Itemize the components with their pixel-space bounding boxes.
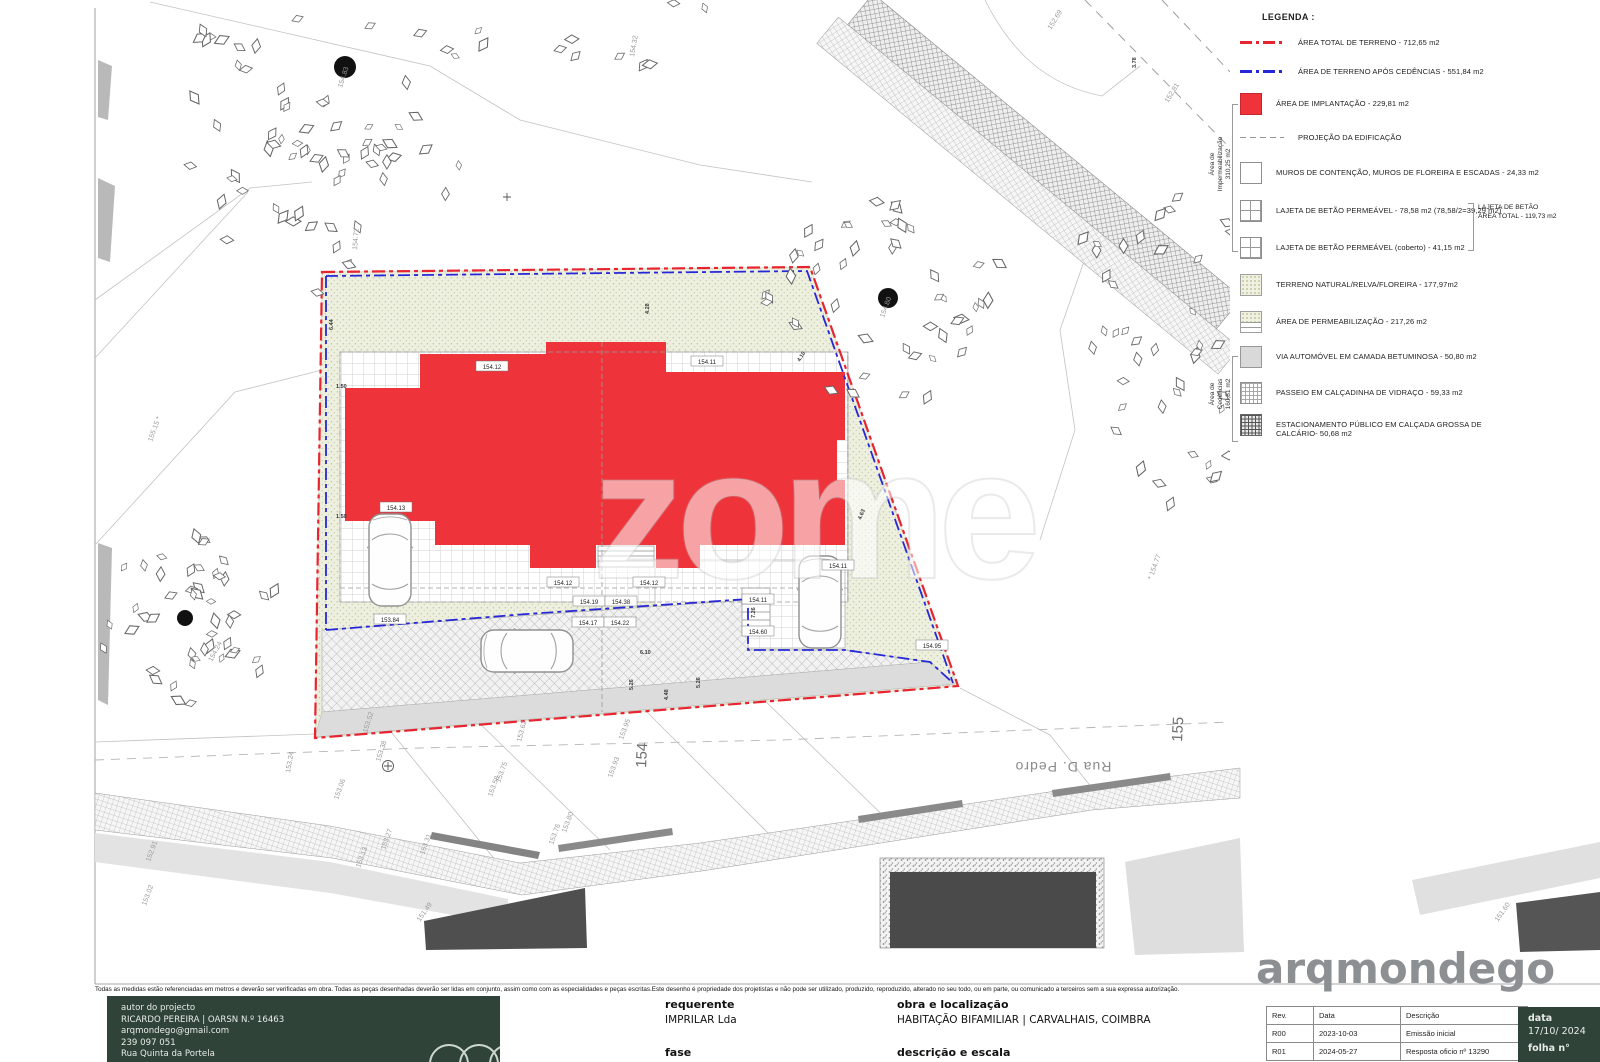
tree-leaf bbox=[147, 672, 164, 688]
revision-header: Data bbox=[1314, 1007, 1401, 1025]
svg-text:154.11: 154.11 bbox=[829, 564, 848, 570]
svg-text:154.12: 154.12 bbox=[483, 365, 502, 371]
author-block: autor do projecto RICARDO PEREIRA | OARS… bbox=[107, 996, 500, 1062]
tree-leaf bbox=[358, 145, 372, 161]
lajeta-total-note: LAJETA DE BETÃO ÁREA TOTAL - 119,73 m2 bbox=[1478, 203, 1557, 221]
tree-leaf bbox=[330, 239, 343, 254]
tree-leaf bbox=[379, 172, 388, 186]
spot-elevation-label: 153.02 bbox=[141, 884, 155, 907]
tree-leaf bbox=[450, 52, 460, 61]
requerente-field: requerente IMPRILAR Lda bbox=[665, 998, 737, 1026]
dimension-label: 5.26 bbox=[696, 677, 702, 688]
legend-swatch-gray-fill bbox=[1240, 346, 1262, 368]
legend-item-label: PASSEIO EM CALÇADINHA DE VIDRAÇO - 59,33… bbox=[1276, 382, 1463, 397]
svg-text:154.17: 154.17 bbox=[579, 621, 598, 627]
tree-leaf bbox=[1100, 325, 1109, 337]
existing-wall-strips bbox=[98, 60, 115, 705]
tree-leaf bbox=[1116, 401, 1128, 412]
legend-item: PASSEIO EM CALÇADINHA DE VIDRAÇO - 59,33… bbox=[1240, 382, 1463, 404]
legend-item-label: ÁREA TOTAL DE TERRENO - 712,65 m2 bbox=[1298, 32, 1440, 47]
tree-leaf bbox=[923, 322, 937, 331]
arqmondego-logo: arqmondego bbox=[1256, 944, 1555, 993]
descricao-heading: descrição e escala bbox=[897, 1046, 1010, 1059]
tree-leaf bbox=[990, 255, 1008, 271]
tree-leaf bbox=[869, 196, 885, 207]
tree-leaf bbox=[858, 371, 871, 381]
boxed-elevation-label: 154.60 bbox=[742, 626, 774, 636]
obra-value: HABITAÇÃO BIFAMILIAR | CARVALHAIS, COIMB… bbox=[897, 1014, 1151, 1026]
legend-item: VIA AUTOMÓVEL EM CAMADA BETUMINOSA - 50,… bbox=[1240, 346, 1477, 368]
spot-elevation-label: 153.58 bbox=[487, 775, 501, 798]
tree-leaf bbox=[1134, 459, 1148, 477]
author-heading: autor do projecto bbox=[121, 1003, 500, 1015]
svg-text:154.11: 154.11 bbox=[698, 360, 717, 366]
tree-leaf bbox=[801, 222, 816, 239]
author-email: arqmondego@gmail.com bbox=[121, 1026, 500, 1038]
boxed-elevation-label: 154.17 bbox=[572, 617, 604, 627]
legend-item-label: PROJEÇÃO DA EDIFICAÇÃO bbox=[1298, 127, 1401, 142]
legend-item-label: ÁREA DE IMPLANTAÇÃO - 229,81 m2 bbox=[1276, 93, 1409, 108]
tree-leaf bbox=[292, 140, 303, 147]
tree-leaf bbox=[206, 630, 217, 637]
spot-elevation-label: 152.81 bbox=[1164, 82, 1181, 104]
spot-elevation-label: 154 bbox=[633, 742, 651, 768]
revision-row: R012024-05-27Resposta oficio nº 13290 bbox=[1267, 1043, 1528, 1061]
svg-text:154.19: 154.19 bbox=[580, 600, 599, 606]
tree-leaf bbox=[955, 345, 970, 360]
spot-elevation-label: 153.38 bbox=[375, 740, 388, 763]
tree-leaf bbox=[848, 240, 861, 257]
svg-text:154.38: 154.38 bbox=[612, 600, 631, 606]
dimension-label: 3.78 bbox=[1132, 57, 1138, 68]
legend-item: ÁREA DE PERMEABILIZAÇÃO - 217,26 m2 bbox=[1240, 311, 1427, 333]
svg-text:153.84: 153.84 bbox=[381, 618, 400, 624]
date-sheet-block: data 17/10/ 2024 folha n° bbox=[1518, 1007, 1600, 1062]
svg-text:154.11: 154.11 bbox=[749, 598, 768, 604]
spot-elevation-label: 153.95 bbox=[618, 718, 632, 741]
spot-elevation-label: * 154.77 bbox=[1147, 554, 1163, 581]
car-garage-left bbox=[365, 514, 415, 606]
spot-elevation-label: 155 bbox=[1169, 716, 1187, 742]
boxed-elevation-label: 154.11 bbox=[691, 356, 723, 366]
tree-leaf bbox=[900, 341, 913, 355]
legend-item-label: MUROS DE CONTENÇÃO, MUROS DE FLOREIRA E … bbox=[1276, 162, 1539, 177]
tree-leaf bbox=[1204, 459, 1213, 470]
tree-leaf bbox=[983, 292, 993, 308]
author-name: RICARDO PEREIRA | OARSN N.º 16463 bbox=[121, 1015, 500, 1027]
boxed-elevation-label: 154.22 bbox=[604, 617, 636, 627]
tree-leaf bbox=[267, 582, 283, 600]
tree-leaf bbox=[251, 38, 262, 54]
tree-leaf bbox=[407, 109, 424, 124]
tree-leaf bbox=[323, 219, 340, 235]
tree-leaf bbox=[1129, 334, 1144, 348]
boxed-elevation-label: 154.12 bbox=[547, 577, 579, 587]
spot-elevation-label: 153.76 bbox=[548, 823, 562, 846]
legend-item-label: ÁREA DE PERMEABILIZAÇÃO - 217,26 m2 bbox=[1276, 311, 1427, 326]
spot-elevation-label: 151.60 bbox=[1494, 902, 1512, 924]
tree-leaf bbox=[1151, 477, 1167, 489]
tree-leaf bbox=[838, 257, 849, 271]
legend-item: LAJETA DE BETÃO PERMEÁVEL - 78,58 m2 (78… bbox=[1240, 200, 1501, 222]
spot-elevation-label: 153.80 bbox=[561, 811, 575, 834]
revision-cell: R01 bbox=[1267, 1043, 1314, 1061]
legend-item: ESTACIONAMENTO PÚBLICO EM CALÇADA GROSSA… bbox=[1240, 414, 1514, 438]
boxed-elevation-label: 154.19 bbox=[573, 596, 605, 606]
tree-leaf bbox=[568, 49, 583, 64]
tree-leaf bbox=[553, 44, 567, 54]
tree-leaf bbox=[1087, 341, 1097, 356]
tree-leaf bbox=[564, 35, 579, 44]
tree-leaf bbox=[394, 122, 404, 131]
spot-elevation-label: 154.72 bbox=[352, 228, 361, 250]
tree-leaf bbox=[473, 26, 483, 36]
legend-item: TERRENO NATURAL/RELVA/FLOREIRA - 177,97m… bbox=[1240, 274, 1458, 296]
tree-leaf bbox=[278, 134, 285, 144]
legend-item: ÁREA DE TERRENO APÓS CEDÊNCIAS - 551,84 … bbox=[1240, 61, 1484, 76]
legend-swatch-dense-grid bbox=[1240, 414, 1262, 436]
spot-elevation-label: 153.93 bbox=[607, 756, 621, 779]
cedencias-label: Área de Cedências 160,81 m2 bbox=[1209, 334, 1233, 454]
legend-item-label: LAJETA DE BETÃO PERMEÁVEL (coberto) - 41… bbox=[1276, 237, 1465, 252]
tree-leaf bbox=[232, 41, 247, 54]
tree-leaf bbox=[183, 161, 197, 171]
tree-leaf bbox=[927, 267, 942, 284]
tree-leaf bbox=[209, 612, 222, 630]
legend-item-label: ESTACIONAMENTO PÚBLICO EM CALÇADA GROSSA… bbox=[1276, 414, 1514, 438]
tree-leaf bbox=[146, 666, 160, 675]
tree-leaf bbox=[251, 654, 263, 665]
tree-leaf bbox=[927, 353, 937, 363]
tree-trunk bbox=[177, 610, 193, 626]
spot-elevation-label: 153.24 bbox=[285, 751, 296, 773]
svg-text:154.12: 154.12 bbox=[640, 581, 659, 587]
tree-leaf bbox=[297, 121, 315, 136]
tree-leaf bbox=[131, 602, 140, 613]
tree-leaf bbox=[140, 559, 149, 572]
revision-table: Rev.DataDescriçãoR002023-10-03Emissão in… bbox=[1266, 1006, 1528, 1061]
tree-leaf bbox=[613, 50, 626, 62]
tree-leaf bbox=[184, 698, 197, 708]
tree-leaf bbox=[1164, 496, 1178, 513]
tree-leaf bbox=[270, 202, 281, 215]
disclaimer-text: Todas as medidas estão referenciadas em … bbox=[95, 986, 1265, 993]
dimension-label: 4.48 bbox=[664, 689, 670, 700]
revision-header: Descrição bbox=[1401, 1007, 1528, 1025]
legend-item-label: VIA AUTOMÓVEL EM CAMADA BETUMINOSA - 50,… bbox=[1276, 346, 1477, 361]
folha-heading: folha n° bbox=[1528, 1042, 1600, 1055]
tree-leaf bbox=[440, 45, 454, 54]
dimension-label: 5.26 bbox=[629, 679, 635, 690]
fase-heading: fase bbox=[665, 1046, 691, 1059]
tree-leaf bbox=[920, 389, 935, 406]
dimension-label: 6.44 bbox=[329, 318, 335, 330]
legend-swatch-grid2 bbox=[1240, 237, 1262, 259]
tree-leaf bbox=[217, 553, 231, 567]
tree-leaf bbox=[169, 692, 188, 708]
tree-leaf bbox=[1109, 424, 1124, 438]
boxed-elevation-label: 154.12 bbox=[476, 361, 508, 371]
tree-leaf bbox=[417, 141, 435, 157]
tree-leaf bbox=[1117, 377, 1129, 385]
tree-leaf bbox=[213, 32, 232, 47]
tree-leaf bbox=[700, 2, 709, 14]
legend-panel: LEGENDA : ÁREA TOTAL DE TERRENO - 712,65… bbox=[1230, 0, 1600, 486]
tree-leaf bbox=[206, 598, 216, 604]
legend-item: MUROS DE CONTENÇÃO, MUROS DE FLOREIRA E … bbox=[1240, 162, 1539, 184]
tree-leaf bbox=[475, 35, 492, 54]
lajeta-total-bracket bbox=[1468, 203, 1474, 251]
boxed-elevation-label: 154.11 bbox=[822, 560, 854, 570]
tree-leaf bbox=[275, 81, 288, 96]
svg-text:154.95: 154.95 bbox=[923, 644, 942, 650]
tree-leaf bbox=[1119, 325, 1131, 337]
car-street bbox=[481, 626, 573, 676]
legend-item: ÁREA DE IMPLANTAÇÃO - 229,81 m2 bbox=[1240, 93, 1409, 115]
tree-leaf bbox=[123, 622, 141, 637]
legend-swatch-speckle bbox=[1240, 274, 1262, 296]
tree-leaf bbox=[880, 218, 893, 229]
tree-leaf bbox=[184, 562, 197, 578]
tree-leaf bbox=[1187, 449, 1200, 459]
boxed-elevation-label: 153.84 bbox=[374, 614, 406, 624]
legend-swatch-gray-dash bbox=[1240, 137, 1284, 138]
boxed-elevation-label: 154.12 bbox=[633, 577, 665, 587]
dimension-label: 6.10 bbox=[640, 650, 651, 656]
tree-leaf bbox=[163, 589, 178, 601]
tree-leaf bbox=[455, 160, 462, 170]
tree-leaf bbox=[156, 567, 166, 582]
data-value: 17/10/ 2024 bbox=[1528, 1026, 1586, 1037]
site-plan-sheet: zome Rua D. Pedro 154.83154.32152.69152.… bbox=[0, 0, 1600, 1062]
tree-leaf bbox=[1150, 342, 1160, 356]
tree-leaf bbox=[898, 389, 911, 401]
revision-cell: Emissão inicial bbox=[1401, 1025, 1528, 1043]
svg-text:154.60: 154.60 bbox=[749, 630, 768, 636]
tree-leaf bbox=[1157, 400, 1167, 414]
tree-leaf bbox=[168, 679, 179, 692]
spot-elevation-label: 154.32 bbox=[629, 35, 640, 57]
tree-leaf bbox=[857, 331, 875, 346]
legend-item: LAJETA DE BETÃO PERMEÁVEL (coberto) - 41… bbox=[1240, 237, 1465, 259]
spot-elevation-label: 155.15 * bbox=[147, 416, 163, 443]
spot-elevation-label: 152.69 bbox=[1047, 9, 1064, 31]
boxed-elevation-label: 154.11 bbox=[742, 594, 774, 604]
legend-swatch-blue-line bbox=[1240, 70, 1284, 73]
legend-title: LEGENDA : bbox=[1262, 12, 1315, 22]
tree-leaf bbox=[972, 260, 985, 270]
legend-swatch-red-line bbox=[1240, 41, 1284, 44]
tree-leaf bbox=[1110, 327, 1121, 339]
legend-swatch-grid2 bbox=[1240, 200, 1262, 222]
fase-field: fase bbox=[665, 1046, 691, 1062]
tree-leaf bbox=[217, 653, 225, 663]
revision-cell: Resposta oficio nº 13290 bbox=[1401, 1043, 1528, 1061]
tree-leaf bbox=[441, 187, 449, 200]
spot-elevation-label: 153.06 bbox=[333, 778, 347, 801]
svg-text:154.22: 154.22 bbox=[611, 621, 630, 627]
legend-item-label: TERRENO NATURAL/RELVA/FLOREIRA - 177,97m… bbox=[1276, 274, 1458, 289]
legend-swatch-fine-grid bbox=[1240, 382, 1262, 404]
boxed-elevation-label: 154.38 bbox=[605, 596, 637, 606]
tree-leaf bbox=[829, 298, 841, 314]
dimension-label: 1.50 bbox=[336, 514, 347, 520]
street-name-label: Rua D. Pedro bbox=[1015, 759, 1112, 775]
obra-heading: obra e localização bbox=[897, 998, 1151, 1011]
tree-leaf bbox=[291, 13, 304, 24]
tree-leaf bbox=[253, 663, 266, 679]
tree-leaf bbox=[265, 126, 280, 142]
revision-header: Rev. bbox=[1267, 1007, 1314, 1025]
tree-leaf bbox=[412, 27, 428, 39]
legend-swatch-speckle-half bbox=[1240, 311, 1262, 333]
legend-item-label: ÁREA DE TERRENO APÓS CEDÊNCIAS - 551,84 … bbox=[1298, 61, 1484, 76]
revision-cell: 2024-05-27 bbox=[1314, 1043, 1401, 1061]
tree-leaf bbox=[287, 151, 298, 162]
legend-swatch-red-fill bbox=[1240, 93, 1262, 115]
impermeabilizacao-label: Área de Impermeabilização 310,25 m2 bbox=[1209, 104, 1233, 224]
boxed-elevation-label: 154.13 bbox=[380, 502, 412, 512]
revision-cell: R00 bbox=[1267, 1025, 1314, 1043]
tree-leaf bbox=[811, 237, 826, 253]
tree-leaf bbox=[186, 88, 203, 107]
tree-leaf bbox=[156, 553, 168, 562]
svg-text:154.13: 154.13 bbox=[387, 506, 406, 512]
svg-text:154.12: 154.12 bbox=[554, 581, 573, 587]
tree-leaf bbox=[363, 20, 376, 31]
requerente-heading: requerente bbox=[665, 998, 737, 1011]
tree-leaf bbox=[119, 562, 129, 573]
tree-leaf bbox=[228, 167, 244, 185]
tree-leaf bbox=[964, 324, 975, 336]
tree-leaf bbox=[215, 193, 229, 210]
spot-elevation-label: 153.62 bbox=[516, 720, 528, 743]
legend-item: ÁREA TOTAL DE TERRENO - 712,65 m2 bbox=[1240, 32, 1440, 47]
legend-item: PROJEÇÃO DA EDIFICAÇÃO bbox=[1240, 127, 1401, 142]
tree-leaf bbox=[667, 0, 680, 7]
dimension-label: 4.28 bbox=[645, 303, 651, 314]
revision-row: R002023-10-03Emissão inicial bbox=[1267, 1025, 1528, 1043]
tree-leaf bbox=[401, 75, 411, 90]
dimension-label: 7.26 bbox=[751, 607, 757, 618]
tree-leaf bbox=[211, 118, 224, 133]
legend-swatch-plain bbox=[1240, 162, 1262, 184]
descricao-field: descrição e escala bbox=[897, 1046, 1010, 1062]
tree-leaf bbox=[303, 218, 320, 234]
data-heading: data bbox=[1528, 1012, 1600, 1025]
tree-leaf bbox=[220, 235, 234, 244]
tree-leaf bbox=[365, 158, 379, 169]
dimension-label: 1.50 bbox=[336, 384, 347, 390]
tree-leaf bbox=[1132, 352, 1143, 367]
tree-leaf bbox=[363, 122, 374, 131]
tree-leaf bbox=[257, 589, 271, 603]
obra-field: obra e localização HABITAÇÃO BIFAMILIAR … bbox=[897, 998, 1151, 1026]
boxed-elevation-label: 154.95 bbox=[916, 640, 948, 650]
requerente-value: IMPRILAR Lda bbox=[665, 1014, 737, 1026]
tree-leaf bbox=[1170, 190, 1185, 204]
revision-cell: 2023-10-03 bbox=[1314, 1025, 1401, 1043]
tree-leaf bbox=[328, 118, 344, 134]
tree-leaf bbox=[936, 327, 951, 345]
